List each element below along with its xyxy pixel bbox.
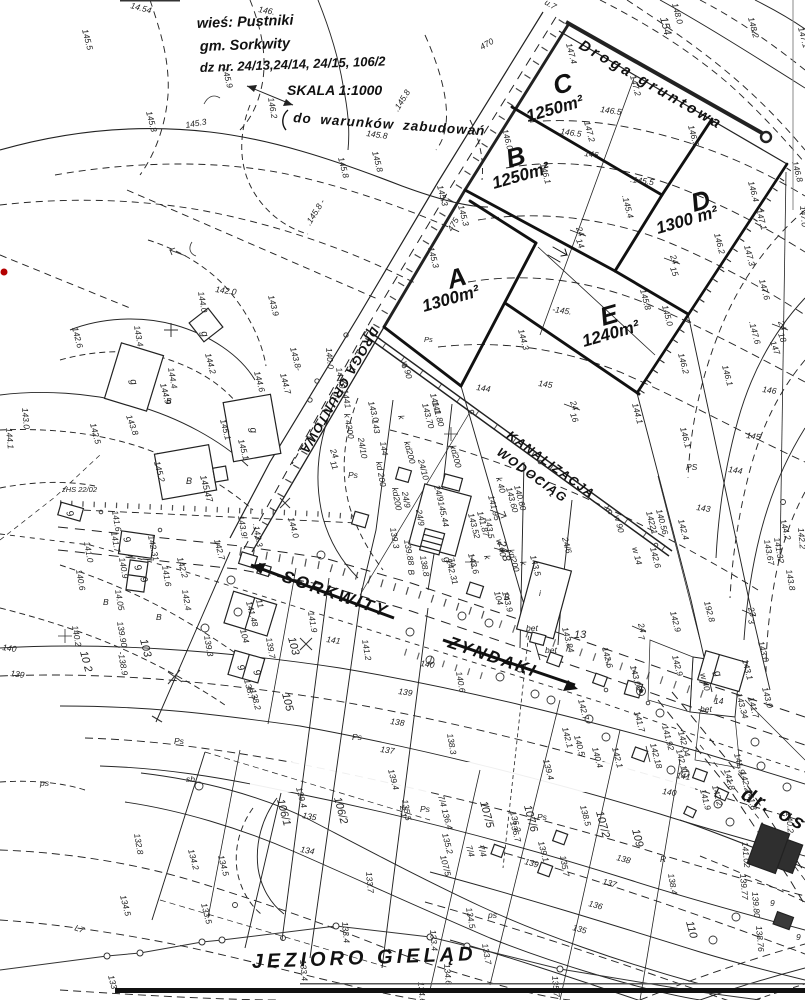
- svg-text:SKALA 1:1000: SKALA 1:1000: [287, 82, 382, 98]
- svg-text:140.2: 140.2: [784, 811, 796, 833]
- svg-text:140: 140: [420, 658, 436, 670]
- svg-text:141: 141: [326, 634, 342, 646]
- svg-text:bet: bet: [545, 645, 557, 655]
- svg-text:PS: PS: [686, 462, 698, 472]
- svg-text:133.7: 133.7: [364, 871, 376, 893]
- svg-text:135.7: 135.7: [550, 975, 562, 997]
- svg-text:14: 14: [714, 696, 724, 706]
- svg-text:133.4: 133.4: [298, 959, 310, 981]
- svg-text:9: 9: [770, 898, 775, 908]
- svg-text:146: 146: [762, 384, 778, 396]
- svg-text:134.6: 134.6: [442, 963, 454, 985]
- svg-text:Ps: Ps: [537, 812, 548, 822]
- svg-text:144: 144: [728, 464, 744, 476]
- svg-text:B: B: [103, 597, 109, 607]
- svg-text:ps: ps: [487, 910, 498, 920]
- svg-text:13: 13: [574, 629, 587, 641]
- svg-text:R: R: [660, 854, 666, 864]
- svg-text:143.0: 143.0: [20, 407, 32, 429]
- svg-text:143: 143: [696, 502, 712, 514]
- svg-text:144.1: 144.1: [4, 427, 16, 449]
- svg-text:133.4: 133.4: [428, 929, 440, 951]
- svg-text:Ps: Ps: [420, 804, 431, 814]
- svg-text:146: 146: [584, 148, 600, 160]
- svg-text:145: 145: [538, 378, 554, 390]
- svg-text:bet: bet: [526, 623, 538, 633]
- svg-text:zHS 22/02: zHS 22/02: [61, 485, 98, 494]
- svg-text:B: B: [186, 476, 192, 486]
- svg-text:137: 137: [380, 744, 396, 756]
- svg-text:133.4: 133.4: [340, 921, 352, 943]
- svg-text:B: B: [504, 592, 510, 602]
- svg-text:2.1: 2.1: [398, 804, 409, 818]
- svg-text:141: 141: [676, 770, 692, 782]
- svg-text:B: B: [166, 396, 172, 406]
- svg-text:wieś: Pustniki: wieś: Pustniki: [197, 13, 295, 32]
- svg-text:Ps: Ps: [174, 736, 185, 746]
- svg-text:145: 145: [746, 430, 762, 442]
- svg-text:138: 138: [390, 716, 406, 728]
- svg-text:139: 139: [398, 686, 414, 698]
- svg-text:140.0: 140.0: [324, 347, 336, 369]
- svg-text:140: 140: [2, 642, 18, 654]
- svg-text:Ps: Ps: [348, 470, 359, 480]
- svg-text:sb: sb: [186, 774, 195, 784]
- svg-text:140: 140: [662, 786, 678, 798]
- svg-text:9: 9: [796, 932, 801, 942]
- svg-text:bet: bet: [700, 704, 712, 714]
- svg-text:144: 144: [476, 382, 492, 394]
- svg-text:ps: ps: [39, 778, 50, 788]
- svg-text:139: 139: [10, 668, 26, 680]
- svg-text:Ps: Ps: [424, 335, 433, 344]
- svg-text:Ps: Ps: [352, 732, 363, 742]
- svg-text:gm. Sorkwity: gm. Sorkwity: [199, 36, 292, 55]
- svg-text:B: B: [156, 612, 162, 622]
